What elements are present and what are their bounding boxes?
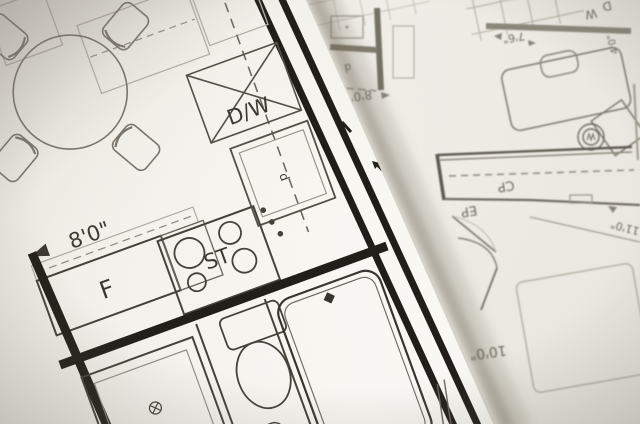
bg-wall-vertical [377,8,381,90]
bg-label-entry: EP [460,202,479,220]
photo-of-floor-plans: d 8'0" 7'6" W D 4'0" [0,0,640,424]
bg-label-closet: CP [496,177,515,195]
floor-plans-scene: d 8'0" 7'6" W D 4'0" [0,0,640,424]
